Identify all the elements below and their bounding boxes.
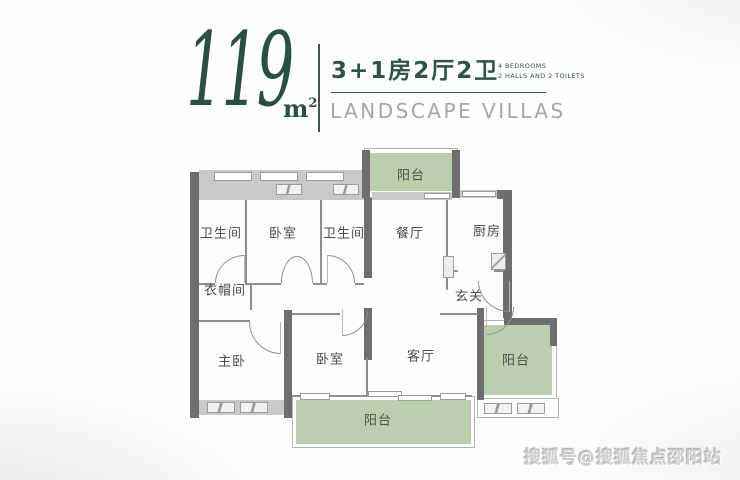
wall-bedroom2-living <box>366 358 368 395</box>
ac-unit-icon <box>207 402 235 413</box>
area-value: 119 <box>186 20 292 122</box>
room-label-dining: 餐厅 <box>396 228 424 241</box>
room-label-living: 客厅 <box>407 351 435 364</box>
floorplan-poster: 119 m2 3+1房2厅2卫 4 BEDROOMS 2 HALLS AND 2… <box>0 0 740 480</box>
window <box>214 172 252 181</box>
wall-balcony-right-left <box>477 308 484 400</box>
kitchen-counter <box>491 253 506 270</box>
foyer-cabinet <box>443 256 454 278</box>
window <box>260 172 298 181</box>
wall-bedroom-bath2 <box>320 200 322 283</box>
wall-balcony-top-left <box>362 150 370 198</box>
apartment-type-title: 3+1房2厅2卫 <box>331 58 499 86</box>
window <box>440 393 466 400</box>
room-label-bedroom-top: 卧室 <box>269 228 297 241</box>
area-unit: m2 <box>283 97 317 121</box>
area-unit-m: m <box>283 94 308 123</box>
wall-kitchen-bottom <box>494 270 504 272</box>
wall-cloakroom <box>250 283 252 310</box>
ac-unit-icon <box>517 403 545 414</box>
wall-master-top <box>199 320 250 322</box>
wall-bedroom2-top <box>292 313 340 315</box>
wall-master-bedroom2 <box>284 310 292 418</box>
room-label-balcony-right: 阳台 <box>502 355 530 368</box>
room-label-bath2: 卫生间 <box>323 228 365 241</box>
window <box>306 172 344 181</box>
window <box>462 191 496 197</box>
tagline: LANDSCAPE VILLAS <box>330 99 566 123</box>
sliding-door <box>424 193 450 199</box>
subtitle-line2: 2 HALLS AND 2 TOILETS <box>498 71 585 81</box>
sliding-door <box>368 391 402 397</box>
room-label-balcony-top: 阳台 <box>397 170 425 183</box>
wall-corridor <box>355 283 364 285</box>
room-label-foyer: 玄关 <box>455 291 483 304</box>
header-divider <box>318 44 320 132</box>
wall-left <box>190 172 199 418</box>
ac-unit-icon <box>240 402 268 413</box>
apartment-type-subtitle: 4 BEDROOMS 2 HALLS AND 2 TOILETS <box>498 61 585 81</box>
wall-foyer-bottom <box>440 313 478 315</box>
sohu-watermark: 搜狐号@搜狐焦点邵阳站 <box>524 443 722 468</box>
room-label-master: 主卧 <box>218 356 246 369</box>
sliding-door <box>398 395 432 401</box>
room-label-kitchen: 厨房 <box>473 226 501 239</box>
wall-corridor <box>313 283 327 285</box>
room-label-balcony-bottom: 阳台 <box>364 415 392 428</box>
wall-balcony-right-right <box>550 318 557 346</box>
ac-unit-icon <box>484 403 512 414</box>
window <box>300 393 330 400</box>
room-label-cloakroom: 衣帽间 <box>204 285 246 298</box>
room-label-bath1: 卫生间 <box>200 228 242 241</box>
subtitle-line1: 4 BEDROOMS <box>498 61 585 71</box>
room-label-bedroom-bottom: 卧室 <box>316 354 344 367</box>
ac-unit-icon <box>276 184 302 195</box>
area-unit-sup: 2 <box>308 96 317 111</box>
header-underline <box>331 92 546 93</box>
wall-balcony-top-right <box>452 150 460 198</box>
wall-mid-upper <box>364 198 372 278</box>
wall-bath1-bedroom <box>245 200 247 283</box>
ac-unit-icon <box>333 184 359 195</box>
